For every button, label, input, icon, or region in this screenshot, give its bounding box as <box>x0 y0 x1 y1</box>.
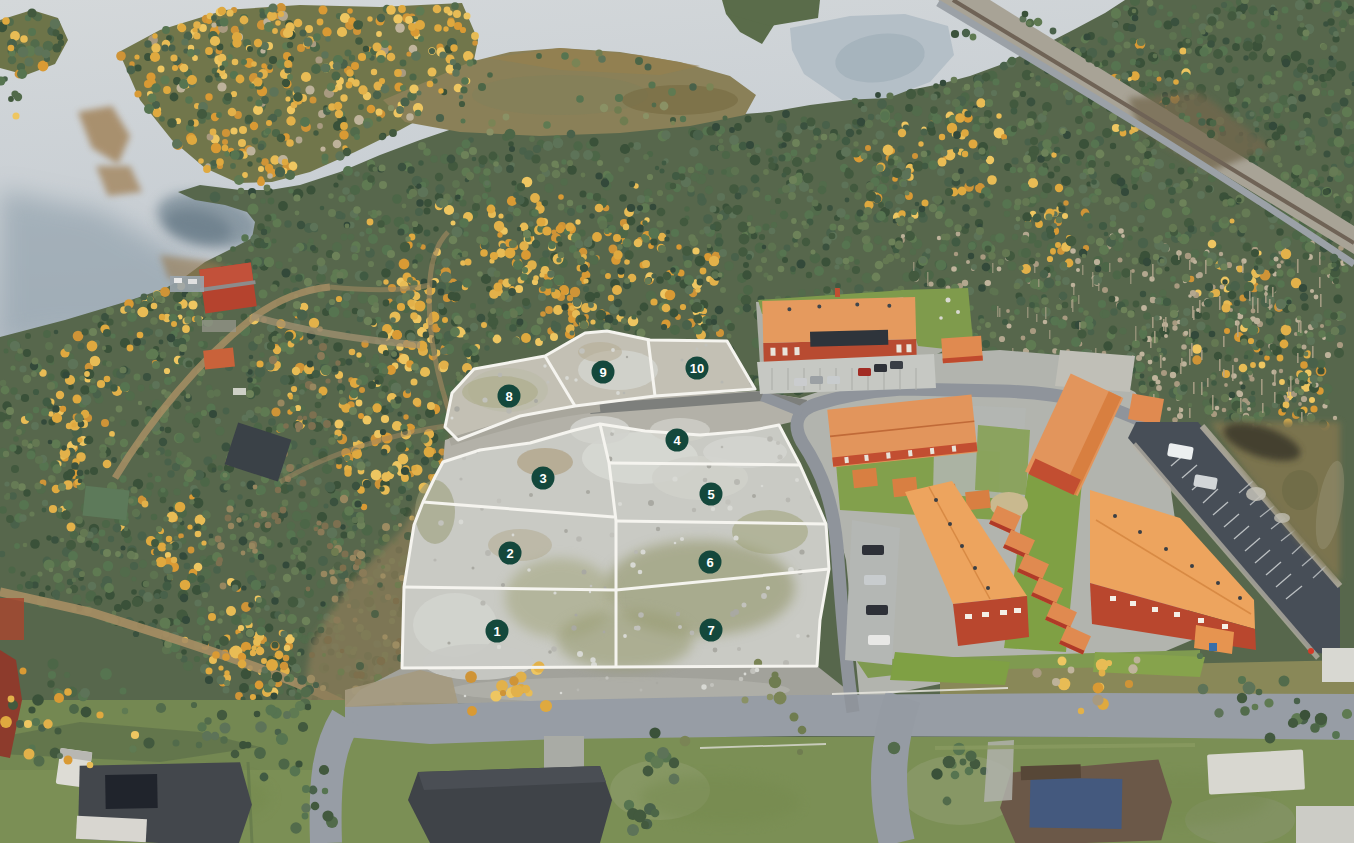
svg-text:6: 6 <box>706 555 713 570</box>
svg-text:9: 9 <box>599 365 606 380</box>
svg-text:3: 3 <box>539 471 546 486</box>
svg-text:2: 2 <box>506 546 513 561</box>
svg-text:10: 10 <box>690 361 704 376</box>
svg-text:8: 8 <box>505 389 512 404</box>
svg-text:5: 5 <box>707 487 714 502</box>
svg-text:4: 4 <box>673 433 681 448</box>
svg-text:1: 1 <box>493 624 500 639</box>
svg-text:7: 7 <box>707 623 714 638</box>
